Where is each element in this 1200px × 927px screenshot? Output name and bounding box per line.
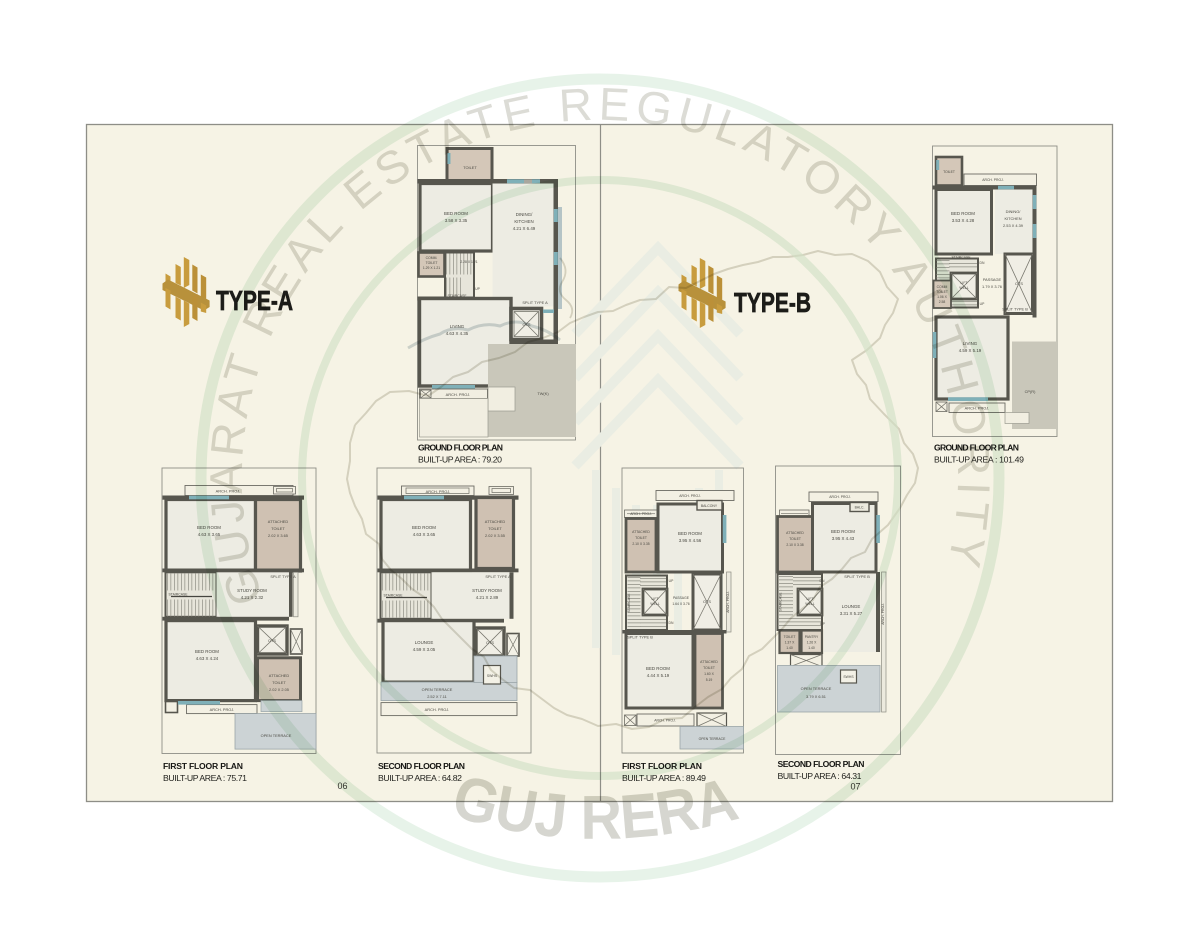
svg-text:BED ROOM: BED ROOM: [831, 529, 855, 534]
svg-text:2.53 X 4.39: 2.53 X 4.39: [1003, 223, 1023, 228]
svg-text:TOILET: TOILET: [635, 536, 647, 540]
svg-text:GROUND FLOOR PLAN: GROUND FLOOR PLAN: [418, 443, 503, 453]
svg-text:OPEN TERRACE: OPEN TERRACE: [699, 737, 726, 741]
svg-text:ARCH. PROJ.: ARCH. PROJ.: [881, 603, 885, 625]
svg-text:3.53 X 4.28: 3.53 X 4.28: [952, 218, 975, 223]
svg-text:UP: UP: [820, 622, 825, 626]
svg-text:4.59 X 3.05: 4.59 X 3.05: [413, 647, 436, 652]
svg-text:DINING/: DINING/: [1006, 209, 1022, 214]
svg-text:TOILET: TOILET: [426, 261, 438, 265]
svg-text:TYPE-B: TYPE-B: [734, 287, 811, 318]
svg-text:DN: DN: [980, 261, 985, 265]
svg-text:TOILET: TOILET: [272, 680, 286, 685]
svg-text:5.19: 5.19: [706, 678, 713, 682]
svg-text:ATTACHED: ATTACHED: [485, 519, 506, 524]
svg-text:4.63 X 4.35: 4.63 X 4.35: [446, 331, 469, 336]
svg-text:BED ROOM: BED ROOM: [412, 525, 436, 530]
svg-text:BED ROOM: BED ROOM: [195, 649, 219, 654]
svg-text:ATTACHED: ATTACHED: [700, 660, 718, 664]
svg-text:TW(K): TW(K): [537, 391, 549, 396]
svg-text:ATTACHED: ATTACHED: [632, 530, 650, 534]
svg-text:4.63 X 4.24: 4.63 X 4.24: [196, 656, 219, 661]
svg-text:BUILT-UP AREA : 79.20: BUILT-UP AREA : 79.20: [418, 455, 502, 465]
svg-text:OTS: OTS: [703, 599, 711, 604]
svg-text:STAIRCASE: STAIRCASE: [952, 256, 972, 260]
svg-text:STAIRCASE: STAIRCASE: [169, 593, 189, 597]
svg-text:2.52 X 7.11: 2.52 X 7.11: [427, 694, 447, 699]
svg-text:BUILT-UP AREA : 64.82: BUILT-UP AREA : 64.82: [378, 773, 462, 783]
svg-text:TOILET: TOILET: [488, 526, 502, 531]
svg-text:ATTACHED: ATTACHED: [269, 673, 290, 678]
svg-text:SWHS: SWHS: [843, 675, 854, 679]
svg-text:CP(R): CP(R): [1025, 389, 1037, 394]
svg-text:OPEN TERRACE: OPEN TERRACE: [422, 687, 453, 692]
svg-text:BUILT-UP AREA : 75.71: BUILT-UP AREA : 75.71: [163, 773, 247, 783]
svg-text:1.37 X: 1.37 X: [785, 641, 796, 645]
svg-text:ARCH. PROJ.: ARCH. PROJ.: [446, 392, 471, 397]
svg-text:ARCH. PROJ.: ARCH. PROJ.: [982, 178, 1004, 182]
svg-text:KITCHEN: KITCHEN: [514, 219, 533, 224]
svg-text:LOUNGE: LOUNGE: [415, 640, 434, 645]
svg-text:PASSAGE: PASSAGE: [983, 277, 1002, 282]
svg-text:FIRST FLOOR PLAN: FIRST FLOOR PLAN: [163, 761, 243, 771]
svg-text:4.21 X 6.49: 4.21 X 6.49: [513, 226, 536, 231]
svg-text:BUILT-UP AREA : 64.31: BUILT-UP AREA : 64.31: [778, 771, 862, 781]
svg-text:SPLIT TYPE A: SPLIT TYPE A: [522, 300, 548, 305]
svg-text:ATTACHED: ATTACHED: [268, 519, 289, 524]
svg-text:TOILET: TOILET: [703, 666, 715, 670]
svg-text:TOILET: TOILET: [784, 635, 796, 639]
svg-text:BED ROOM: BED ROOM: [646, 666, 670, 671]
svg-text:ARCH. PROJ.: ARCH. PROJ.: [210, 707, 235, 712]
svg-text:ARCH. PROJ.: ARCH. PROJ.: [829, 495, 851, 499]
svg-text:SPLIT TYPE B: SPLIT TYPE B: [627, 635, 653, 640]
svg-text:SPLIT TYPE B: SPLIT TYPE B: [1002, 307, 1028, 312]
svg-text:ARCH. PROJ.: ARCH. PROJ.: [425, 707, 450, 712]
svg-text:1.64 X 3.76: 1.64 X 3.76: [672, 602, 689, 606]
svg-text:DN: DN: [669, 621, 674, 625]
svg-text:TOILET: TOILET: [789, 537, 801, 541]
svg-text:LIFT: LIFT: [652, 597, 659, 601]
svg-text:4.21 X 2.89: 4.21 X 2.89: [476, 595, 499, 600]
svg-text:BALC.: BALC.: [855, 506, 865, 510]
svg-text:1.26 X: 1.26 X: [807, 641, 818, 645]
svg-text:2.02 X 2.05: 2.02 X 2.05: [269, 687, 289, 692]
svg-text:1.79 X 3.76: 1.79 X 3.76: [982, 284, 1002, 289]
svg-text:STAIRCASE: STAIRCASE: [384, 594, 404, 598]
svg-text:DN: DN: [820, 579, 825, 583]
svg-text:OTS: OTS: [486, 640, 494, 645]
svg-text:SECOND FLOOR PLAN: SECOND FLOOR PLAN: [778, 759, 865, 769]
svg-text:DINING/: DINING/: [516, 212, 533, 217]
svg-text:ARCH. PROJ.: ARCH. PROJ.: [726, 591, 730, 613]
svg-text:WELL: WELL: [650, 602, 659, 606]
svg-text:2.02 X 3.65: 2.02 X 3.65: [268, 533, 288, 538]
svg-text:1.40: 1.40: [808, 646, 815, 650]
svg-text:3.95 X 4.43: 3.95 X 4.43: [832, 536, 855, 541]
svg-text:UP: UP: [980, 302, 985, 306]
svg-text:TOILET: TOILET: [943, 170, 955, 174]
svg-text:LOUNGE: LOUNGE: [842, 604, 861, 609]
svg-text:1.40: 1.40: [786, 646, 793, 650]
svg-text:2.02 X 3.55: 2.02 X 3.55: [485, 533, 505, 538]
svg-text:PANTRY: PANTRY: [805, 635, 819, 639]
svg-text:1.29 X 1.21: 1.29 X 1.21: [423, 266, 440, 270]
svg-text:LIFT: LIFT: [961, 281, 968, 285]
svg-text:STAIRCASE: STAIRCASE: [779, 592, 783, 612]
svg-text:STUDY ROOM: STUDY ROOM: [472, 588, 502, 593]
svg-text:OTS: OTS: [268, 638, 276, 643]
svg-text:3.95 X 4.56: 3.95 X 4.56: [679, 538, 702, 543]
svg-text:BALCONY: BALCONY: [701, 504, 718, 508]
svg-text:BED ROOM: BED ROOM: [951, 211, 975, 216]
svg-text:2.10 X 3.38: 2.10 X 3.38: [786, 543, 803, 547]
svg-text:UP: UP: [669, 579, 674, 583]
svg-text:TOILET: TOILET: [271, 526, 285, 531]
svg-text:ATTACHED: ATTACHED: [786, 531, 804, 535]
svg-text:3.31 X 5.27: 3.31 X 5.27: [840, 611, 863, 616]
svg-text:WELL: WELL: [959, 286, 968, 290]
svg-text:2.10 X 3.35: 2.10 X 3.35: [632, 542, 649, 546]
svg-text:OTS: OTS: [1015, 281, 1023, 286]
svg-text:ARCH. PROJ.: ARCH. PROJ.: [426, 489, 451, 494]
svg-text:ARCH. PROJ.: ARCH. PROJ.: [679, 494, 701, 498]
svg-text:1.60 X: 1.60 X: [704, 672, 715, 676]
svg-text:SPLIT TYPE B: SPLIT TYPE B: [844, 574, 870, 579]
svg-text:2.28 X 1.21: 2.28 X 1.21: [460, 260, 477, 264]
svg-text:TOILET: TOILET: [463, 165, 477, 170]
svg-text:UP: UP: [475, 287, 480, 291]
svg-text:4.63 X 3.65: 4.63 X 3.65: [413, 532, 436, 537]
svg-text:COMM.: COMM.: [426, 256, 438, 260]
svg-text:SECOND FLOOR PLAN: SECOND FLOOR PLAN: [378, 761, 465, 771]
svg-text:STAIRCASE: STAIRCASE: [627, 593, 631, 613]
svg-text:PASSAGE: PASSAGE: [673, 596, 690, 600]
svg-text:BED ROOM: BED ROOM: [678, 531, 702, 536]
svg-text:SPLIT TYPE A: SPLIT TYPE A: [485, 574, 511, 579]
svg-text:4.44 X 5.19: 4.44 X 5.19: [647, 673, 670, 678]
svg-text:SPLIT TYPE A: SPLIT TYPE A: [270, 574, 296, 579]
svg-text:KITCHEN: KITCHEN: [1004, 216, 1021, 221]
